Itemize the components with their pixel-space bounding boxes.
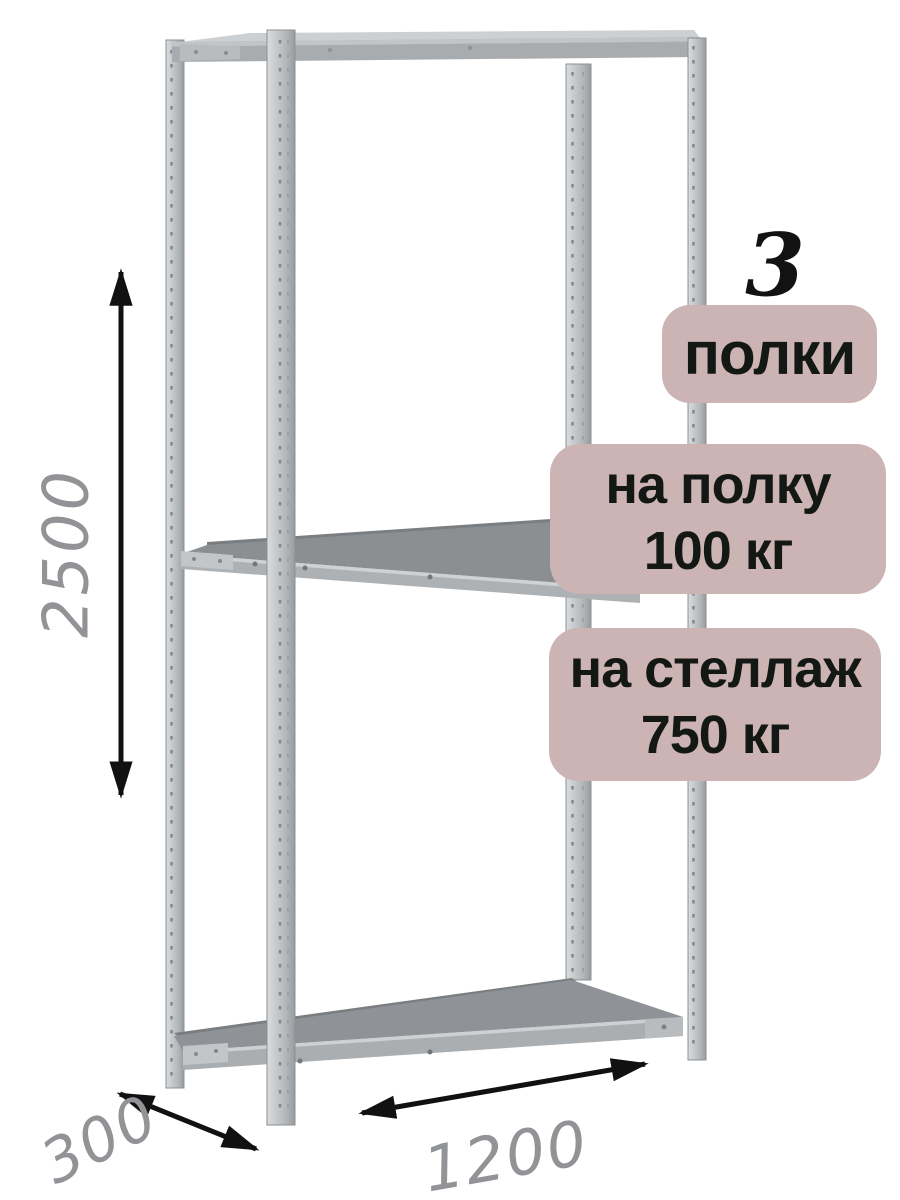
per-shelf-load-line1: на полку [550,452,886,518]
product-image: 2500 300 1200 3 полки на полку 100 кг на… [0,0,900,1200]
per-rack-load-badge: на стеллаж 750 кг [549,628,881,781]
shelf-count-number: 3 [745,216,805,317]
top-shelf [172,30,700,62]
per-rack-load-line2: 750 кг [549,702,881,768]
per-rack-load-line1: на стеллаж [549,636,881,702]
front-left-post [267,30,295,1125]
rack-illustration [0,0,900,1200]
bottom-shelf [174,978,683,1070]
per-shelf-load-line2: 100 кг [550,518,886,584]
shelf-count-badge: полки [662,305,877,403]
width-dimension-arrow [362,1064,645,1113]
per-shelf-load-badge: на полку 100 кг [550,444,886,594]
height-dimension-label: 2500 [30,468,103,638]
shelf-count-label: полки [684,320,855,387]
